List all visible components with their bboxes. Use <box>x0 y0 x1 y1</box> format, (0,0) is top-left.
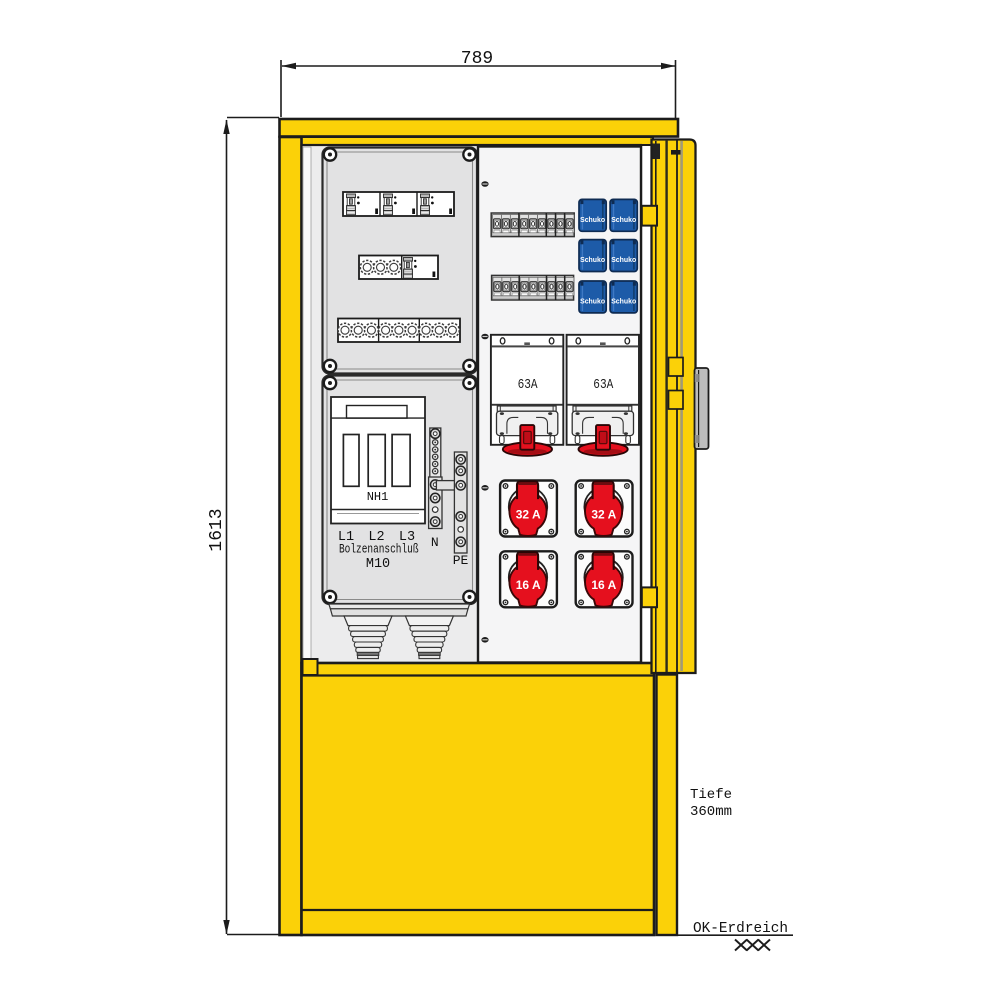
svg-text:32 A: 32 A <box>516 507 541 521</box>
svg-text:63A: 63A <box>518 378 539 393</box>
svg-text:Bolzenanschluß: Bolzenanschluß <box>339 542 419 557</box>
svg-text:16 A: 16 A <box>591 578 616 592</box>
svg-text:1613: 1613 <box>207 508 227 551</box>
svg-text:N: N <box>431 535 439 550</box>
svg-text:NH1: NH1 <box>367 490 389 504</box>
svg-text:OK-Erdreich: OK-Erdreich <box>693 921 788 937</box>
svg-text:63A: 63A <box>593 378 614 393</box>
svg-text:32 A: 32 A <box>591 507 616 521</box>
svg-text:M10: M10 <box>366 557 390 572</box>
svg-text:789: 789 <box>461 49 493 69</box>
svg-text:PE: PE <box>453 553 469 568</box>
svg-text:360mm: 360mm <box>690 804 732 820</box>
svg-text:16 A: 16 A <box>516 578 541 592</box>
svg-text:Tiefe: Tiefe <box>690 787 732 803</box>
